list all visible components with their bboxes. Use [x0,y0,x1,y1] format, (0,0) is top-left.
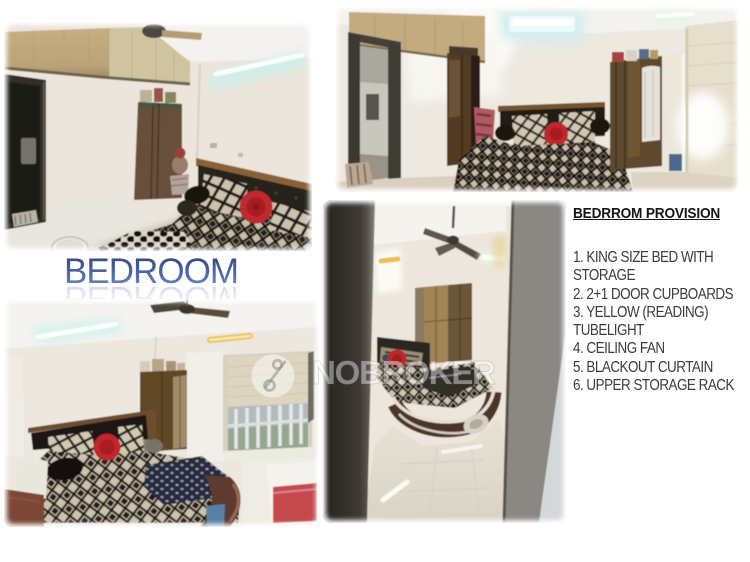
svg-text:NOBROKER: NOBROKER [312,354,496,391]
svg-text:BEDROOM: BEDROOM [64,279,238,300]
